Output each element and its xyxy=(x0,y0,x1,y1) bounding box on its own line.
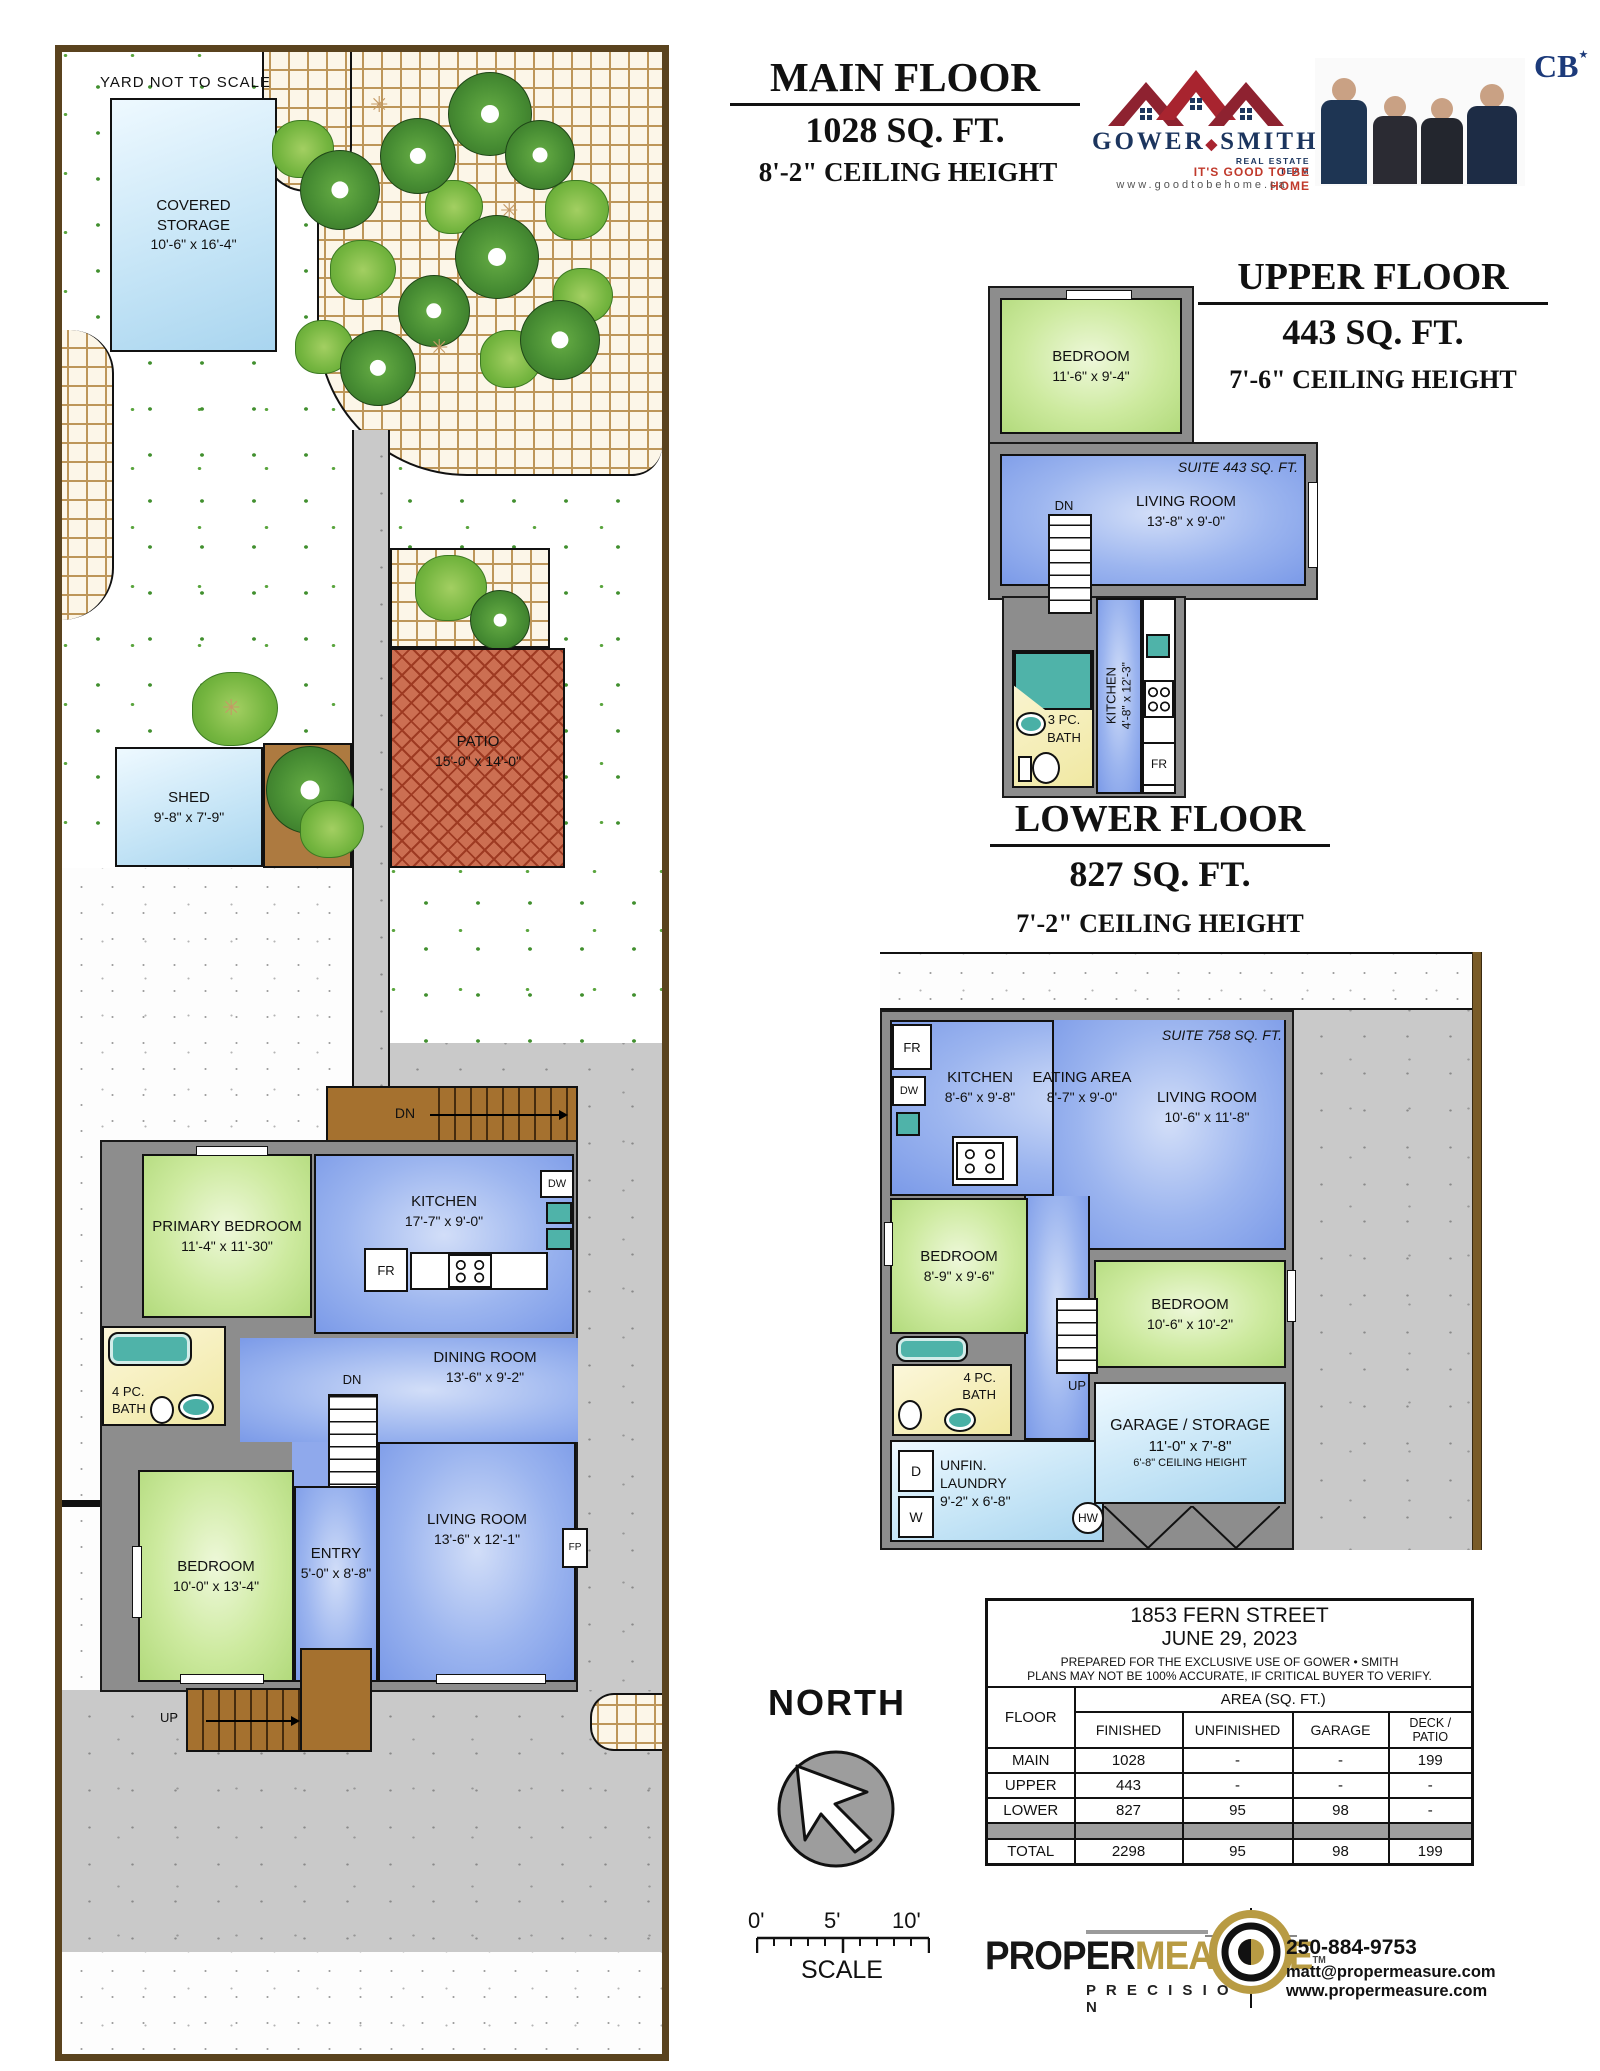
main-floor-ceiling: 8'-2" CEILING HEIGHT xyxy=(718,158,1098,186)
table-row: UPPER443--- xyxy=(987,1773,1473,1798)
upper-suite-label: SUITE 443 SQ. FT. xyxy=(1146,458,1298,476)
window xyxy=(196,1146,268,1156)
col-header-unfinished: UNFINISHED xyxy=(1183,1712,1293,1748)
star-icon: ★ xyxy=(1578,49,1588,61)
lower-living-label: LIVING ROOM 10'-6" x 11'-8" xyxy=(1142,1088,1272,1126)
lower-up-label: UP xyxy=(1058,1378,1096,1395)
contact-web: www.propermeasure.com xyxy=(1286,1982,1506,2001)
gower-smith-roof-icon xyxy=(1098,60,1294,132)
address: 1853 FERN STREET xyxy=(989,1604,1470,1628)
washer: W xyxy=(898,1496,934,1538)
north-label: NORTH xyxy=(752,1682,922,1724)
toilet-main xyxy=(150,1396,174,1424)
window xyxy=(1287,1270,1296,1322)
note2: PLANS MAY NOT BE 100% ACCURATE, IF CRITI… xyxy=(989,1669,1470,1683)
team-photo xyxy=(1315,58,1525,186)
table-title-cell: 1853 FERN STREET JUNE 29, 2023 PREPARED … xyxy=(987,1600,1473,1688)
window xyxy=(884,1222,893,1266)
person-figure xyxy=(1373,96,1417,184)
contact-block: 250-884-9753 matt@propermeasure.com www.… xyxy=(1286,1936,1506,2001)
covered-storage-label: COVERED STORAGE xyxy=(139,196,249,235)
sink-main xyxy=(546,1202,572,1224)
note1: PREPARED FOR THE EXCLUSIVE USE OF GOWER … xyxy=(989,1655,1470,1669)
contact-email: matt@propermeasure.com xyxy=(1286,1963,1506,1982)
lower-floor-title: LOWER FLOOR xyxy=(990,800,1330,847)
lower-top-strip xyxy=(880,952,1472,1010)
fridge-upper: FR xyxy=(1142,742,1176,786)
sink-main xyxy=(546,1228,572,1250)
stairs-upper xyxy=(1048,514,1092,614)
driveway-bottom xyxy=(62,1952,662,2060)
bathtub-lower xyxy=(896,1336,968,1362)
main-floor-title: MAIN FLOOR xyxy=(730,56,1080,106)
date: JUNE 29, 2023 xyxy=(989,1628,1470,1651)
shed: SHED 9'-8" x 7'-9" xyxy=(115,747,263,867)
lower-kitchen-label: KITCHEN 8'-6" x 9'-8" xyxy=(934,1068,1026,1106)
table-separator-row xyxy=(987,1823,1473,1839)
garage-door-swing xyxy=(1104,1506,1280,1550)
room-living-main: LIVING ROOM 13'-6" x 12'-1" xyxy=(378,1442,576,1682)
col-header-floor: FLOOR xyxy=(987,1687,1075,1748)
laundry-label: UNFIN. LAUNDRY 9'-2" x 6'-8" xyxy=(940,1456,1040,1511)
person-figure xyxy=(1321,78,1367,184)
upper-floor-title: UPPER FLOOR xyxy=(1198,258,1548,305)
dishwasher-main: DW xyxy=(540,1170,574,1198)
hot-water-tank: HW xyxy=(1072,1502,1104,1534)
dryer: D xyxy=(898,1450,934,1492)
bath-sink-main xyxy=(178,1394,214,1420)
upper-dn-label: DN xyxy=(1046,498,1082,515)
tree-icon xyxy=(300,150,380,230)
col-header-garage: GARAGE xyxy=(1293,1712,1389,1748)
window xyxy=(132,1546,142,1618)
scale-tick-10: 10' xyxy=(892,1908,936,1934)
lower-concrete-right xyxy=(1294,1010,1472,1550)
hedge-bottom-right xyxy=(590,1693,662,1751)
table-row-total: TOTAL22989598199 xyxy=(987,1839,1473,1865)
tree-icon xyxy=(380,118,456,194)
branch-icon: ✳ xyxy=(430,335,448,361)
lower-suite-label: SUITE 758 SQ. FT. xyxy=(1130,1026,1282,1044)
yard-note: YARD NOT TO SCALE xyxy=(100,73,300,93)
lower-eating-label: EATING AREA 8'-7" x 9'-0" xyxy=(1022,1068,1142,1106)
deck-dn-label: DN xyxy=(388,1104,422,1122)
driveway-left-strip xyxy=(62,1086,100,1690)
propermeasure-target-icon xyxy=(1205,1908,1297,2008)
toilet-tank-upper xyxy=(1018,756,1032,782)
branch-icon: ✳ xyxy=(370,92,388,118)
covered-storage-dims: 10'-6" x 16'-4" xyxy=(150,235,236,253)
bath-sink-upper xyxy=(1016,712,1046,736)
patio-label: PATIO 15'-0" x 14'-0" xyxy=(398,732,558,770)
dining-label: DINING ROOM 13'-6" x 9'-2" xyxy=(400,1348,570,1386)
room-bedroom-lower-left: BEDROOM 8'-9" x 9'-6" xyxy=(890,1198,1028,1334)
room-bedroom-lower-right: BEDROOM 10'-6" x 10'-2" xyxy=(1094,1260,1286,1368)
stove-lower xyxy=(956,1142,1004,1180)
upper-kitchen-label: KITCHEN 4'-8" x 12'-3" xyxy=(1103,601,1134,791)
yard-grass-lower-right xyxy=(390,868,662,1043)
room-kitchen-upper: KITCHEN 4'-8" x 12'-3" xyxy=(1096,598,1142,794)
room-bedroom-main: BEDROOM 10'-0" x 13'-4" xyxy=(138,1470,294,1682)
bath-sink-lower xyxy=(944,1408,976,1432)
area-header: AREA (SQ. FT.) xyxy=(1075,1687,1473,1712)
window xyxy=(436,1674,546,1684)
garden-path xyxy=(352,430,390,1088)
walk-up-arrow xyxy=(206,1720,292,1722)
floor-plan-sheet: { "yard": { "not_to_scale": "YARD NOT TO… xyxy=(0,0,1600,2071)
toilet-lower xyxy=(898,1400,922,1430)
area-info-table: 1853 FERN STREET JUNE 29, 2023 PREPARED … xyxy=(985,1598,1474,1866)
sink-upper xyxy=(1146,634,1170,658)
sink-lower xyxy=(896,1112,920,1136)
driveway-upper xyxy=(62,868,352,1140)
person-figure xyxy=(1421,98,1463,184)
diamond-icon: ◆ xyxy=(1206,137,1221,153)
fridge-lower: FR xyxy=(892,1024,932,1070)
tree-icon xyxy=(455,215,539,299)
person-figure xyxy=(1467,84,1517,184)
scale-tick-5: 5' xyxy=(824,1908,858,1934)
table-row: LOWER8279598- xyxy=(987,1798,1473,1823)
room-primary-bedroom: PRIMARY BEDROOM 11'-4" x 11'-30" xyxy=(142,1154,312,1318)
fireplace: FP xyxy=(562,1528,588,1568)
room-kitchen-main: KITCHEN 17'-7" x 9'-0" xyxy=(314,1154,574,1334)
toilet-upper xyxy=(1032,752,1060,784)
branch-icon: ✳ xyxy=(500,198,518,224)
deck-dn-arrow xyxy=(430,1114,560,1116)
scale-label: SCALE xyxy=(782,1956,902,1985)
hedge-left-strip xyxy=(62,330,114,620)
stairs-main xyxy=(328,1394,378,1498)
upper-floor-area: 443 SQ. FT. xyxy=(1198,314,1548,352)
upper-living-label: LIVING ROOM 13'-8" x 9'-0" xyxy=(1116,492,1256,530)
window xyxy=(180,1674,264,1684)
stairs-dn-label: DN xyxy=(332,1372,372,1389)
north-compass-icon xyxy=(775,1748,897,1870)
lower-floor-ceiling: 7'-2" CEILING HEIGHT xyxy=(970,910,1350,937)
bathtub-main xyxy=(108,1332,192,1366)
covered-storage: COVERED STORAGE 10'-6" x 16'-4" xyxy=(110,98,277,352)
entry-stoop xyxy=(300,1648,372,1752)
gower-smith-wordmark: GOWER◆SMITH xyxy=(1092,128,1312,156)
window xyxy=(1308,482,1318,568)
upper-bath-label1: 3 PC. xyxy=(1038,712,1090,729)
room-garage: GARAGE / STORAGE 11'-0" x 7'-8" 6'-8" CE… xyxy=(1094,1382,1286,1504)
branch-icon: ✳ xyxy=(222,695,240,721)
tree-icon xyxy=(520,300,600,380)
fridge-main: FR xyxy=(364,1248,408,1292)
tree-icon xyxy=(505,120,575,190)
tree-icon xyxy=(340,330,416,406)
walk-up-label: UP xyxy=(152,1710,186,1727)
stairs-lower xyxy=(1056,1298,1098,1374)
col-header-deck: DECK / PATIO xyxy=(1389,1712,1473,1748)
upper-bath-label2: BATH xyxy=(1036,730,1092,747)
stove-upper xyxy=(1144,680,1174,718)
main-floor-area: 1028 SQ. FT. xyxy=(730,112,1080,150)
lower-brown-edge xyxy=(1472,952,1482,1550)
contact-phone: 250-884-9753 xyxy=(1286,1936,1506,1960)
upper-floor-ceiling: 7'-6" CEILING HEIGHT xyxy=(1178,366,1568,393)
lower-floor-area: 827 SQ. FT. xyxy=(1010,856,1310,894)
scale-tick-0: 0' xyxy=(748,1908,782,1934)
window xyxy=(1066,290,1132,300)
scale-ruler xyxy=(756,1936,930,1954)
table-row: MAIN1028--199 xyxy=(987,1748,1473,1773)
brand-website: www.goodtobehome.ca xyxy=(1092,179,1312,191)
room-bedroom-upper: BEDROOM 11'-6" x 9'-4" xyxy=(1000,298,1182,434)
stove-main xyxy=(448,1254,492,1288)
coldwell-banker-logo: CB★ xyxy=(1534,48,1590,100)
col-header-finished: FINISHED xyxy=(1075,1712,1183,1748)
tree-icon xyxy=(470,590,530,650)
dishwasher-lower: DW xyxy=(892,1076,926,1106)
